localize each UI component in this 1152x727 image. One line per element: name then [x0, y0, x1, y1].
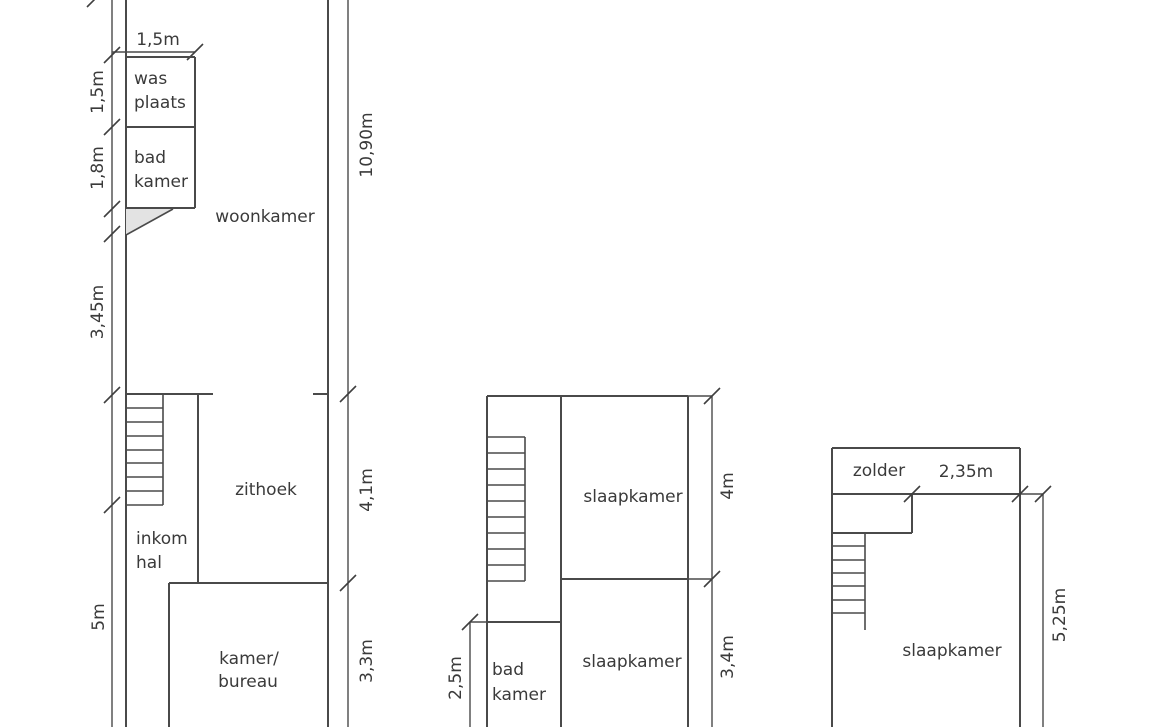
room-label-zithoek: zithoek: [235, 480, 297, 500]
dim-label-left-3: 3,45m: [88, 285, 108, 339]
room-label-wasplaats-1: was: [134, 69, 167, 89]
floorplan-canvas: 1,5m 1,5m 1,8m 3,45m 5m was plaats bad k…: [0, 0, 1152, 727]
dim-label-top-width: 1,5m: [136, 30, 180, 50]
room-label-inkomhal-1: inkom: [136, 529, 188, 549]
room-label-badkamer-1: bad: [492, 660, 524, 680]
staircase-ground-floor: [126, 394, 163, 505]
dim-label-right: 5,25m: [1050, 588, 1070, 642]
dim-label-top-width: 2,35m: [939, 462, 993, 482]
room-label-badkamer-2: kamer: [492, 685, 546, 705]
floorplan-drawing: 1,5m 1,5m 1,8m 3,45m 5m was plaats bad k…: [0, 0, 1152, 727]
room-label-kamer-bureau-2: bureau: [218, 672, 278, 692]
tick-top-cutoff: [87, 0, 99, 7]
dim-label-right-bottom: 3,4m: [718, 635, 738, 679]
dim-label-right-top: 4m: [718, 472, 738, 499]
dim-label-right-bottom: 3,3m: [357, 639, 377, 683]
room-label-badkamer-2: kamer: [134, 172, 188, 192]
room-label-slaapkamer-front: slaapkamer: [583, 487, 682, 507]
staircase-attic: [832, 533, 865, 630]
staircase-first-floor: [487, 437, 525, 581]
room-label-inkomhal-2: hal: [136, 553, 162, 573]
dim-label-left-1: 1,5m: [88, 70, 108, 114]
plan-attic: zolder 2,35m slaapkamer 5,25m: [832, 448, 1070, 727]
room-label-woonkamer: woonkamer: [215, 207, 314, 227]
room-label-wasplaats-2: plaats: [134, 93, 186, 113]
room-label-zolder: zolder: [853, 461, 905, 481]
room-label-slaapkamer-back: slaapkamer: [582, 652, 681, 672]
room-label-kamer-bureau-1: kamer/: [219, 649, 279, 669]
plan-ground-floor: 1,5m 1,5m 1,8m 3,45m 5m was plaats bad k…: [87, 0, 377, 727]
plan-first-floor: slaapkamer slaapkamer bad kamer 4m 3,4m …: [446, 388, 738, 727]
dim-label-left-2: 1,8m: [88, 146, 108, 190]
dim-label-right-mid: 4,1m: [357, 468, 377, 512]
room-label-badkamer-1: bad: [134, 148, 166, 168]
dim-label-right-total: 10,90m: [357, 112, 377, 177]
dim-label-left-4: 5m: [89, 603, 109, 630]
dim-label-left: 2,5m: [446, 656, 466, 700]
room-label-slaapkamer: slaapkamer: [902, 641, 1001, 661]
